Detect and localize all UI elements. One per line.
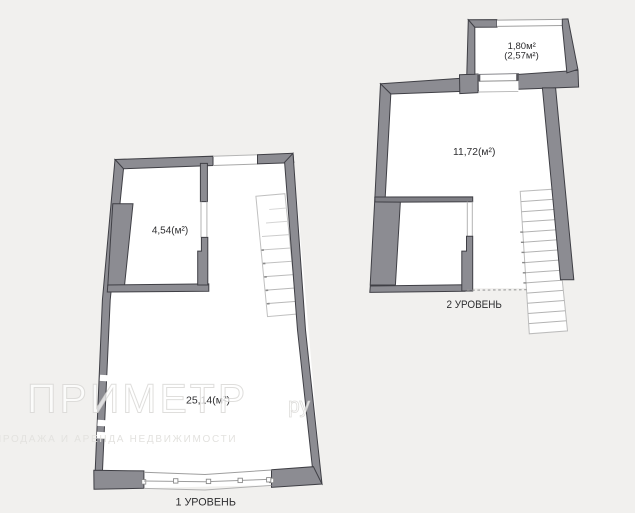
svg-text:1 УРОВЕНЬ: 1 УРОВЕНЬ (175, 496, 236, 508)
svg-text:ПРИМЕТР: ПРИМЕТР (27, 376, 248, 422)
svg-text:ру: ру (288, 395, 310, 418)
svg-text:11,72(м²): 11,72(м²) (453, 147, 495, 158)
svg-text:ПРОДАЖА И АРЕНДА НЕДВИЖИМОСТИ: ПРОДАЖА И АРЕНДА НЕДВИЖИМОСТИ (0, 434, 237, 445)
svg-text:(2,57м²): (2,57м²) (504, 50, 539, 61)
svg-text:4,54(м²): 4,54(м²) (152, 225, 188, 236)
svg-text:2 УРОВЕНЬ: 2 УРОВЕНЬ (446, 299, 502, 311)
